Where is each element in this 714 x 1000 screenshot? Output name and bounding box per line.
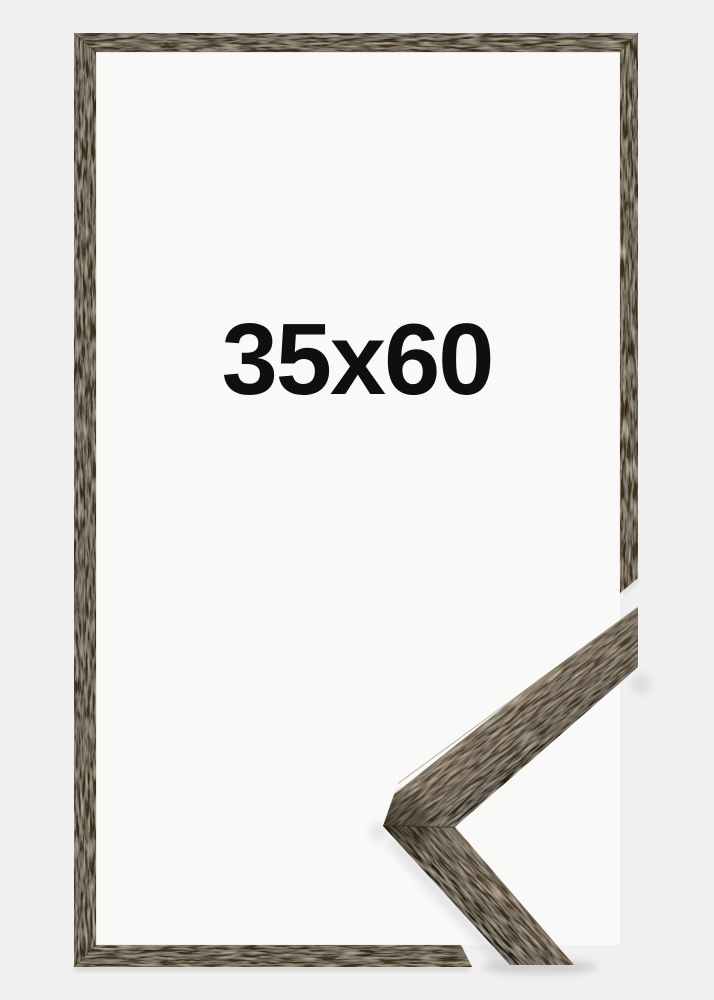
frame-illustration xyxy=(0,0,714,1000)
frame-product-image: 35x60 xyxy=(0,0,714,1000)
frame-left-bar xyxy=(74,33,96,967)
size-label: 35x60 xyxy=(0,310,714,411)
arm-end-shadow xyxy=(631,674,651,694)
frame-bottom-bar-cut xyxy=(74,945,472,967)
frame-top-bar xyxy=(74,33,638,52)
inner-mat-area xyxy=(96,52,620,945)
